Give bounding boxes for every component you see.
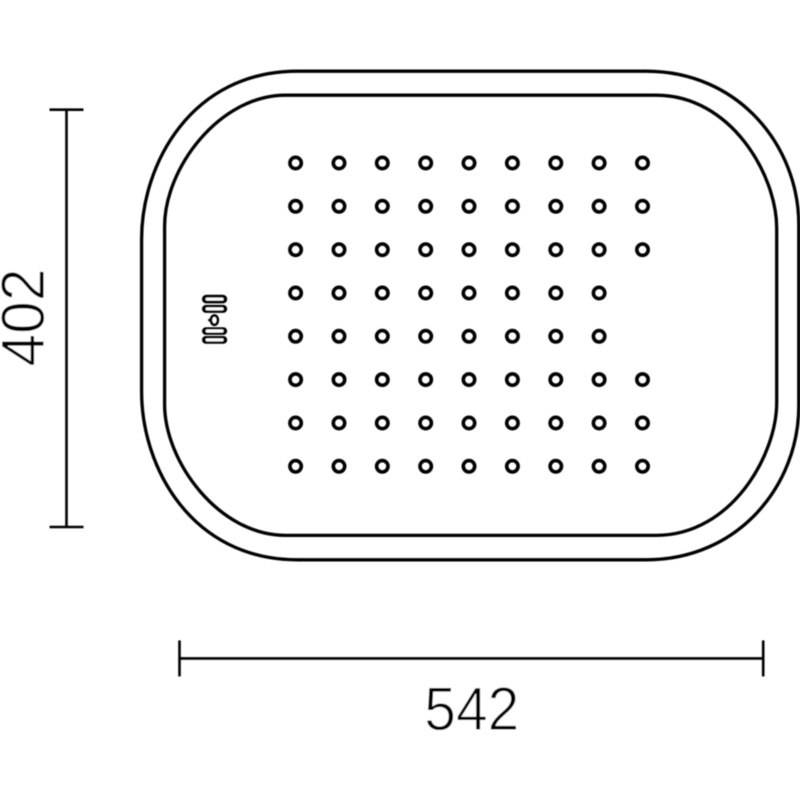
svg-text:402: 402 <box>0 269 57 367</box>
svg-text:542: 542 <box>424 675 519 743</box>
